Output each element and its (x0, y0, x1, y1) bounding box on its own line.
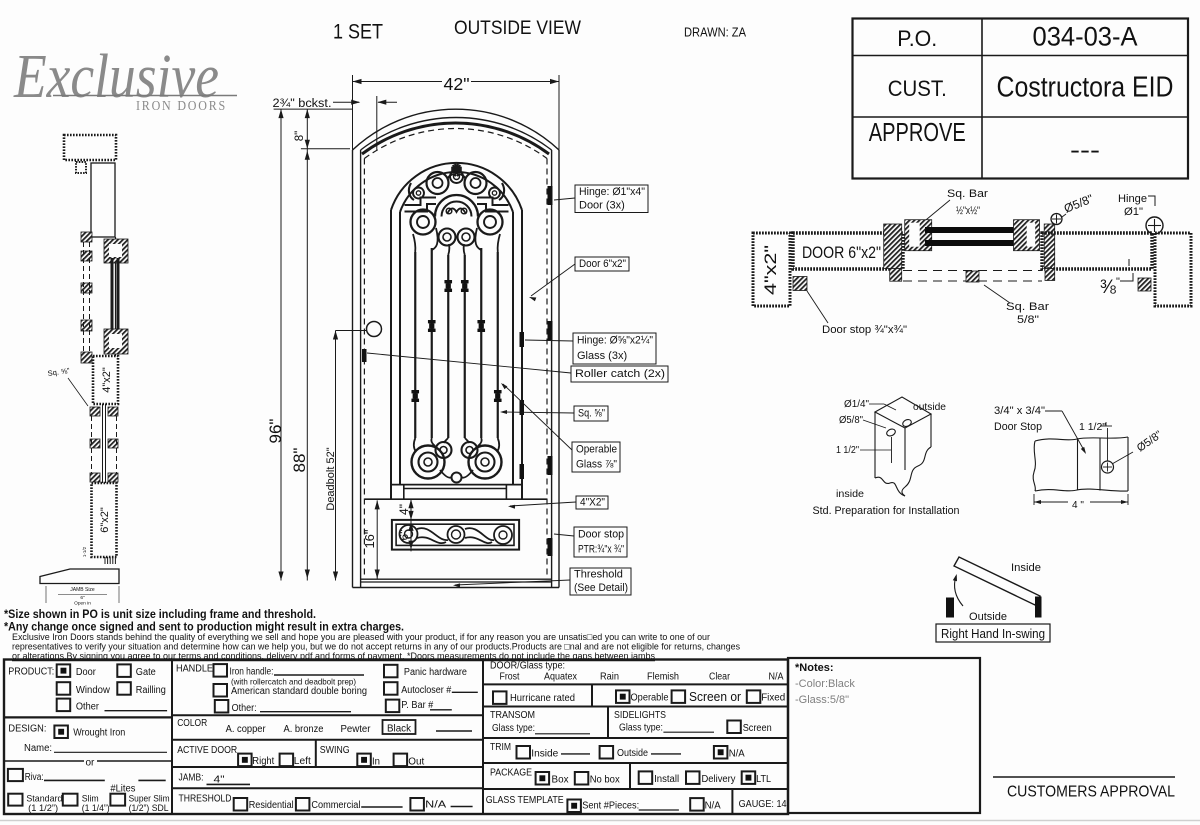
svg-text:(1 1/4”): (1 1/4”) (82, 803, 110, 814)
svg-text:P. Bar #: P. Bar # (401, 700, 433, 711)
svg-text:Screen or: Screen or (689, 689, 742, 704)
svg-text:Box: Box (552, 775, 569, 786)
svg-text:Costructora EID: Costructora EID (997, 72, 1174, 104)
svg-text:DOOR/Glass type:: DOOR/Glass type: (490, 661, 565, 672)
svg-text:42": 42" (444, 74, 470, 94)
svg-text:COLOR: COLOR (177, 718, 207, 729)
svg-text:034-03-A: 034-03-A (1033, 22, 1138, 52)
svg-text:N/A: N/A (705, 801, 721, 812)
svg-text:Hinge: Hinge (1118, 193, 1147, 205)
svg-text:JAMB Size: JAMB Size (70, 587, 95, 593)
svg-text:N/A: N/A (425, 800, 446, 811)
svg-text:Door stop: Door stop (578, 528, 624, 540)
svg-text:3/4" x 3/4": 3/4" x 3/4" (994, 405, 1045, 417)
svg-text:Clear: Clear (709, 672, 731, 683)
svg-text:DOOR 6"x2": DOOR 6"x2" (802, 243, 881, 262)
svg-text:Out: Out (408, 757, 424, 768)
svg-text:APPROVE: APPROVE (869, 119, 966, 147)
svg-text:1-1/2: 1-1/2 (82, 546, 87, 557)
svg-text:Door stop ¾"x¾": Door stop ¾"x¾" (822, 324, 907, 336)
svg-text:96": 96" (266, 419, 285, 444)
svg-text:2¾" bckst.: 2¾" bckst. (273, 98, 332, 110)
svg-text:Left: Left (294, 756, 311, 767)
svg-text:Ø5/8": Ø5/8" (839, 415, 863, 426)
svg-text:PACKAGE: PACKAGE (490, 768, 532, 779)
svg-text:(1/2”) SDL: (1/2”) SDL (129, 803, 169, 814)
svg-text:Operable: Operable (576, 443, 617, 455)
svg-text:Delivery: Delivery (702, 774, 736, 785)
svg-text:Glass type:: Glass type: (492, 723, 535, 734)
svg-text:GLASS TEMPLATE: GLASS TEMPLATE (486, 795, 564, 806)
svg-text:Gate: Gate (136, 667, 156, 678)
svg-text:TRIM: TRIM (490, 742, 511, 753)
svg-text:Right: Right (252, 756, 274, 767)
svg-text:-Glass:5/8": -Glass:5/8" (795, 694, 849, 706)
svg-text:Ø1": Ø1" (1124, 206, 1143, 218)
svg-text:": " (1116, 276, 1120, 288)
svg-text:Black: Black (387, 724, 412, 735)
svg-text:Sq. Bar: Sq. Bar (947, 188, 988, 200)
svg-text:Rain: Rain (600, 672, 619, 683)
svg-text:GAUGE: 14: GAUGE: 14 (739, 799, 787, 810)
svg-text:Door 6"x2": Door 6"x2" (579, 258, 626, 270)
svg-text:Door Stop: Door Stop (994, 421, 1042, 433)
svg-text:A. copper: A. copper (226, 724, 267, 735)
svg-text:Inside: Inside (1011, 562, 1041, 574)
svg-text:HANDLE: HANDLE (176, 664, 213, 675)
svg-text:Outside: Outside (969, 611, 1007, 623)
svg-text:Flemish: Flemish (647, 672, 679, 683)
svg-text:DRAWN: ZA: DRAWN: ZA (684, 26, 747, 40)
svg-text:1 1/2": 1 1/2" (1079, 422, 1106, 433)
svg-text:SWING: SWING (320, 745, 350, 756)
svg-text:ACTIVE DOOR: ACTIVE DOOR (177, 745, 237, 756)
svg-text:SIDELIGHTS: SIDELIGHTS (614, 710, 666, 721)
svg-text:No box: No box (590, 775, 620, 786)
svg-text:THRESHOLD: THRESHOLD (179, 793, 232, 804)
svg-text:Hinge: Ø1"x4": Hinge: Ø1"x4" (579, 186, 645, 198)
svg-text:(with rollercatch and deadbolt: (with rollercatch and deadbolt prep) (231, 677, 356, 687)
svg-text:Commercial: Commercial (311, 800, 360, 811)
svg-text:4"x2": 4"x2" (761, 245, 780, 295)
svg-text:In: In (372, 757, 380, 768)
svg-text:TRANSOM: TRANSOM (490, 710, 535, 721)
svg-text:inside: inside (836, 488, 864, 500)
svg-text:Pewter: Pewter (341, 724, 372, 735)
svg-text:Ø1/4": Ø1/4" (844, 399, 869, 410)
svg-text:Std. Preparation for Installat: Std. Preparation for Installation (813, 505, 960, 517)
svg-text:Window: Window (76, 685, 111, 696)
svg-text:Aquatex: Aquatex (544, 672, 577, 683)
svg-text:⅜: ⅜ (1100, 277, 1116, 298)
svg-text:Sq. Bar: Sq. Bar (1006, 301, 1049, 313)
svg-text:Door (3x): Door (3x) (579, 200, 625, 212)
svg-text:(See Detail): (See Detail) (574, 582, 628, 594)
svg-text:Fixed: Fixed (761, 693, 785, 704)
svg-text:N/A: N/A (769, 672, 784, 683)
svg-text:LTL: LTL (756, 774, 771, 785)
svg-text:Riva:: Riva: (25, 772, 44, 783)
svg-text:American standard double borin: American standard double boring (231, 686, 367, 697)
svg-text:PTR:¾"x ¾": PTR:¾"x ¾" (578, 543, 624, 555)
svg-text:4 ": 4 " (1072, 500, 1084, 511)
svg-text:Install: Install (654, 774, 679, 785)
svg-text:CUSTOMERS APPROVAL: CUSTOMERS APPROVAL (1007, 784, 1175, 801)
svg-text:Operable: Operable (631, 693, 669, 704)
svg-text:Inside: Inside (531, 749, 558, 760)
svg-text:or: or (86, 758, 96, 769)
svg-text:Name:: Name: (24, 743, 52, 754)
svg-text:CUST.: CUST. (888, 76, 947, 101)
svg-text:4"X2": 4"X2" (580, 496, 605, 508)
svg-text:N/A: N/A (729, 749, 745, 760)
svg-text:4": 4" (397, 504, 411, 515)
svg-text:DESIGN:: DESIGN: (8, 724, 46, 735)
svg-text:Residential: Residential (249, 800, 294, 811)
svg-text:Hinge: Ø⅝"x2¼": Hinge: Ø⅝"x2¼" (577, 335, 653, 347)
svg-text:---: --- (1070, 137, 1100, 164)
svg-text:Exclusive Iron Doors stands be: Exclusive Iron Doors stands behind the q… (12, 632, 710, 642)
svg-text:A. bronze: A. bronze (284, 724, 324, 735)
svg-text:6": 6" (80, 595, 85, 601)
svg-text:Roller catch (2x): Roller catch (2x) (575, 368, 665, 380)
svg-text:½"x½": ½"x½" (956, 205, 980, 217)
svg-text:Other:: Other: (232, 703, 257, 714)
svg-text:Door: Door (76, 667, 97, 678)
svg-text:Glass ⅞": Glass ⅞" (576, 458, 617, 470)
svg-text:Glass (3x): Glass (3x) (577, 350, 627, 362)
svg-text:Deadbolt 52": Deadbolt 52" (325, 447, 337, 510)
svg-text:representatives to verify your: representatives to verify your situation… (12, 642, 740, 652)
svg-text:Other: Other (76, 702, 100, 713)
svg-text:PRODUCT:: PRODUCT: (8, 667, 54, 678)
svg-text:Hurricane rated: Hurricane rated (510, 693, 575, 704)
svg-text:JAMB:: JAMB: (179, 773, 204, 784)
svg-text:(1 1/2”): (1 1/2”) (28, 803, 58, 814)
svg-text:Glass type:: Glass type: (619, 723, 663, 734)
svg-text:Open in: Open in (74, 601, 91, 607)
svg-text:Sq. ⅝": Sq. ⅝" (578, 407, 605, 419)
svg-text:8": 8" (294, 131, 306, 141)
svg-text:P.O.: P.O. (897, 26, 937, 51)
svg-text:Railling: Railling (136, 685, 166, 696)
svg-text:Wrought Iron: Wrought Iron (73, 728, 125, 739)
svg-text:Outside: Outside (617, 748, 648, 759)
svg-text:1 SET: 1 SET (333, 21, 383, 44)
svg-text:*Notes:: *Notes: (795, 662, 834, 674)
svg-text:Threshold: Threshold (574, 569, 623, 581)
svg-text:1 1/2": 1 1/2" (836, 445, 859, 456)
svg-text:Autocloser #: Autocloser # (401, 685, 451, 696)
svg-text:*Size shown in PO is unit size: *Size shown in PO is unit size including… (4, 609, 316, 621)
svg-text:-Color:Black: -Color:Black (795, 678, 855, 690)
svg-text:Right Hand In-swing: Right Hand In-swing (941, 627, 1045, 641)
svg-text:4"x2": 4"x2" (101, 367, 113, 393)
svg-text:88": 88" (290, 448, 309, 473)
svg-text:Sent #Pieces:: Sent #Pieces: (582, 801, 639, 812)
svg-text:Frost: Frost (500, 672, 520, 683)
svg-text:IRON DOORS: IRON DOORS (136, 98, 227, 113)
svg-text:Panic hardware: Panic hardware (404, 667, 467, 678)
svg-text:5/8": 5/8" (1017, 314, 1039, 326)
svg-text:Screen: Screen (743, 723, 772, 734)
svg-text:6"x2": 6"x2" (99, 507, 111, 533)
svg-text:OUTSIDE VIEW: OUTSIDE VIEW (454, 17, 582, 39)
